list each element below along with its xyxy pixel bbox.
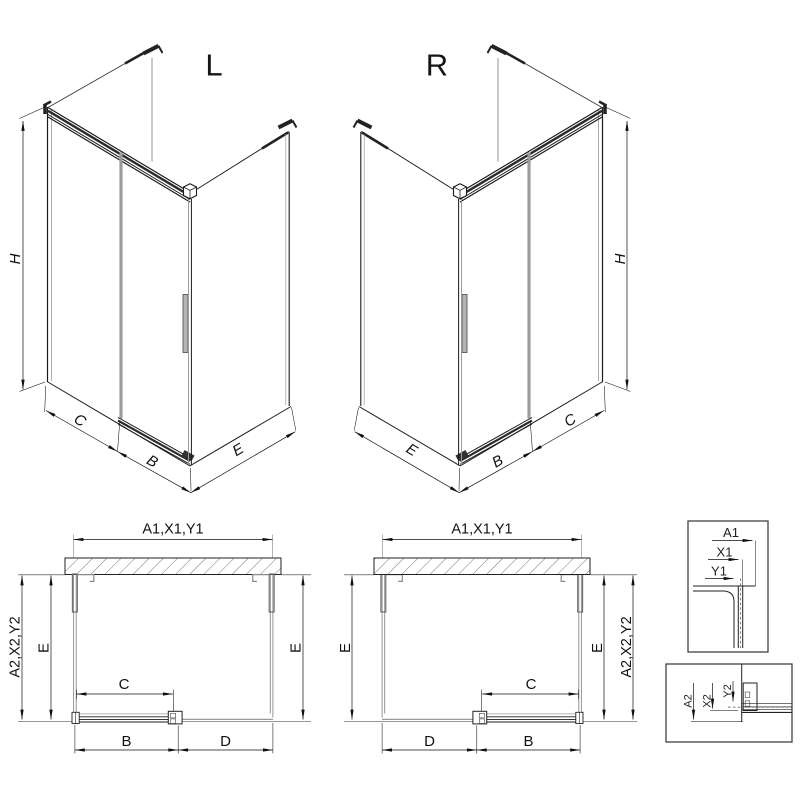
technical-drawing-sheet: L H C B E R H C B E A1,X1,Y1 A2,X2,Y2 E … [0,0,800,800]
detail-top-y1: Y1 [711,564,727,579]
detail-corner-bottom: A2 X2 Y2 [666,664,792,742]
plan-right-depth-outer: E [337,643,354,653]
plan-left-depth-inner: E [36,643,53,653]
dim-label-height-left-iso: H [7,253,24,264]
wall-section-hatch-right [374,558,590,575]
plan-left-depth-outer: E [288,643,305,653]
plan-left-top-dim: A1,X1,Y1 [142,522,203,538]
plan-view-left: A1,X1,Y1 A2,X2,Y2 E E C B D [8,522,312,754]
detail-bottom-x2: X2 [702,694,714,707]
detail-top-a1: A1 [723,525,739,540]
iso-view-right: R H C B E [354,46,631,493]
detail-corner-top: A1 X1 Y1 [688,521,768,652]
dim-label-height-right-iso: H [612,253,629,264]
plan-right-side-dim: A2,X2,Y2 [619,616,635,677]
dim-label-c-right-iso: C [561,410,579,430]
dim-label-c-left-iso: C [71,411,89,431]
dim-label-b-left-iso: B [144,452,161,472]
plan-left-side-dim: A2,X2,Y2 [8,616,24,677]
detail-bottom-a2: A2 [683,694,695,707]
detail-bottom-y2: Y2 [722,684,734,697]
dim-label-e-left-iso: E [230,440,248,460]
plan-right-depth-inner: E [589,643,606,653]
plan-right-door-width: B [523,733,533,750]
plan-left-opening-width: D [220,733,231,750]
iso-view-left: L H C B E [7,46,297,493]
plan-right-door-travel: C [526,676,537,693]
dim-label-b-right-iso: B [489,452,506,472]
plan-right-top-dim: A1,X1,Y1 [451,522,512,538]
detail-top-x1: X1 [717,545,733,560]
plan-right-opening-width: D [424,733,435,750]
plan-left-door-travel: C [119,676,130,693]
plan-left-door-width: B [121,733,131,750]
variant-label-right: R [426,48,448,83]
dim-label-e-right-iso: E [403,440,421,460]
shower-enclosure-drawing: L H C B E R H C B E A1,X1,Y1 A2,X2,Y2 E … [0,0,800,800]
variant-label-left: L [205,48,222,83]
plan-view-right: A1,X1,Y1 A2,X2,Y2 E E C B D [337,522,637,754]
